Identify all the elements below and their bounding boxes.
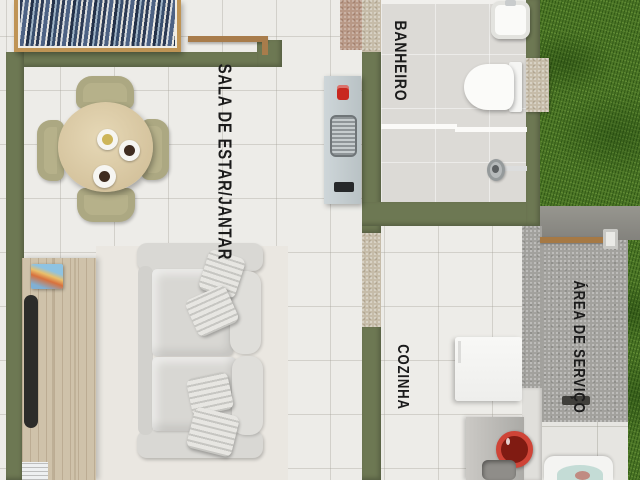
shower-arm: [502, 166, 527, 171]
room-label-service-area: ÁREA DE SERVIÇO: [569, 280, 587, 413]
wall-center-middle-textured: [362, 233, 381, 327]
floorplan-canvas: SALA DE ESTAR/JANTAR BANHEIRO COZINHA ÁR…: [0, 0, 640, 480]
wall-top-corner: [257, 40, 282, 67]
grass-strip-bottom-right: [628, 240, 640, 480]
plate-food: [102, 134, 113, 145]
fridge: [455, 337, 522, 401]
shower-glass-partition: [381, 124, 457, 129]
shower-head-center: [492, 165, 499, 173]
picture-frame: [31, 264, 63, 289]
tv: [24, 295, 38, 428]
bookshelf: [14, 0, 181, 52]
cabinet-red-object: [337, 85, 349, 100]
fridge-handle: [458, 341, 461, 363]
wall-kitchen-service-divider: [522, 226, 542, 388]
clothesline-bracket: [603, 229, 618, 249]
cabinet-tray: [330, 115, 357, 157]
washing-machine-drum: [575, 471, 590, 480]
kitchen-sink-basin: [482, 460, 516, 480]
plate-food: [99, 171, 110, 182]
sideboard-base: [22, 462, 48, 480]
wood-ledge: [188, 36, 268, 42]
room-label-kitchen: COZINHA: [393, 344, 411, 410]
room-label-bathroom: BANHEIRO: [390, 21, 410, 102]
bathroom-sink: [491, 1, 530, 39]
gas-cylinder-glint: [506, 438, 510, 445]
wood-ledge-end: [262, 36, 268, 55]
room-label-living-dining: SALA DE ESTAR/JANTAR: [214, 64, 235, 261]
toilet: [464, 64, 514, 110]
grass-patch-right: [540, 0, 640, 208]
wall-top: [8, 52, 282, 67]
wall-entry-textured: [340, 0, 362, 50]
cabinet-slot: [334, 182, 354, 192]
wall-center-lower: [362, 327, 381, 480]
wall-bathroom-bottom: [362, 202, 540, 226]
sink-faucet: [505, 0, 516, 6]
bathroom-window-sill: [526, 58, 549, 112]
sofa-front-edge: [138, 266, 153, 435]
dining-chair-south: [77, 188, 135, 222]
wall-center-top-textured: [362, 0, 381, 53]
plate-food: [124, 145, 135, 156]
shower-glass-partition: [455, 127, 527, 132]
books-row: [20, 0, 175, 46]
